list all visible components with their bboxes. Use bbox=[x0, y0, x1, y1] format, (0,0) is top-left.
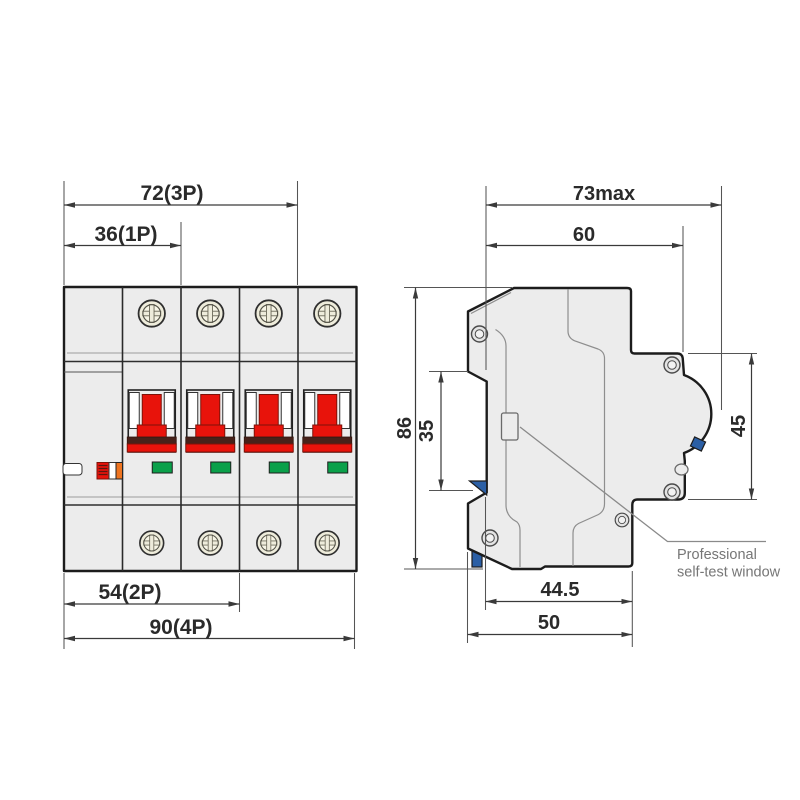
dim-label: 72(3P) bbox=[140, 182, 203, 205]
dim-label: 90(4P) bbox=[149, 616, 212, 639]
dim-label: 50 bbox=[538, 612, 560, 634]
test-button-orange bbox=[116, 463, 123, 480]
case-screw bbox=[472, 326, 488, 342]
status-indicator-green bbox=[269, 462, 289, 473]
technical-drawing-page: 72(3P) 36(1P) 54(2P) 90(4P) bbox=[0, 0, 800, 800]
dim-label: 45 bbox=[728, 415, 750, 437]
dim-label: 86 bbox=[394, 417, 416, 439]
terminal-screw-bottom bbox=[257, 531, 281, 555]
label-window bbox=[63, 464, 82, 476]
dim-label: 36(1P) bbox=[94, 223, 157, 246]
status-indicator-green bbox=[152, 462, 172, 473]
test-button-tricolor bbox=[97, 463, 123, 480]
terminal-screw-top bbox=[197, 300, 223, 326]
annotation-line-2: self-test window bbox=[677, 565, 781, 581]
breaker-dimension-drawing: 72(3P) 36(1P) 54(2P) 90(4P) bbox=[0, 0, 800, 800]
dim-label: 44.5 bbox=[541, 579, 580, 601]
annotation-line-1: Professional bbox=[677, 547, 757, 563]
status-indicator-green bbox=[211, 462, 231, 473]
terminal-screw-bottom bbox=[140, 531, 164, 555]
case-screw bbox=[664, 484, 680, 500]
self-test-window bbox=[502, 413, 519, 440]
case-screw bbox=[482, 530, 498, 546]
dim-label: 73max bbox=[573, 183, 635, 205]
case-screw bbox=[615, 513, 629, 527]
test-button-white bbox=[109, 463, 116, 480]
front-view bbox=[63, 287, 357, 571]
pole-handle-toggle bbox=[244, 390, 293, 452]
pole-handle-toggle bbox=[186, 390, 235, 452]
terminal-screw-top bbox=[314, 300, 340, 326]
status-indicator-green bbox=[328, 462, 348, 473]
terminal-screw-bottom bbox=[315, 531, 339, 555]
terminal-screw-top bbox=[139, 300, 165, 326]
edge-notch bbox=[675, 464, 688, 475]
pole-handle-toggle bbox=[127, 390, 176, 452]
dim-label: 54(2P) bbox=[98, 581, 161, 604]
case-screw bbox=[664, 357, 680, 373]
terminal-screw-bottom bbox=[198, 531, 222, 555]
pole-handle-toggle bbox=[303, 390, 352, 452]
terminal-screw-top bbox=[256, 300, 282, 326]
dim-label: 35 bbox=[416, 420, 438, 442]
dim-label: 60 bbox=[573, 224, 595, 246]
